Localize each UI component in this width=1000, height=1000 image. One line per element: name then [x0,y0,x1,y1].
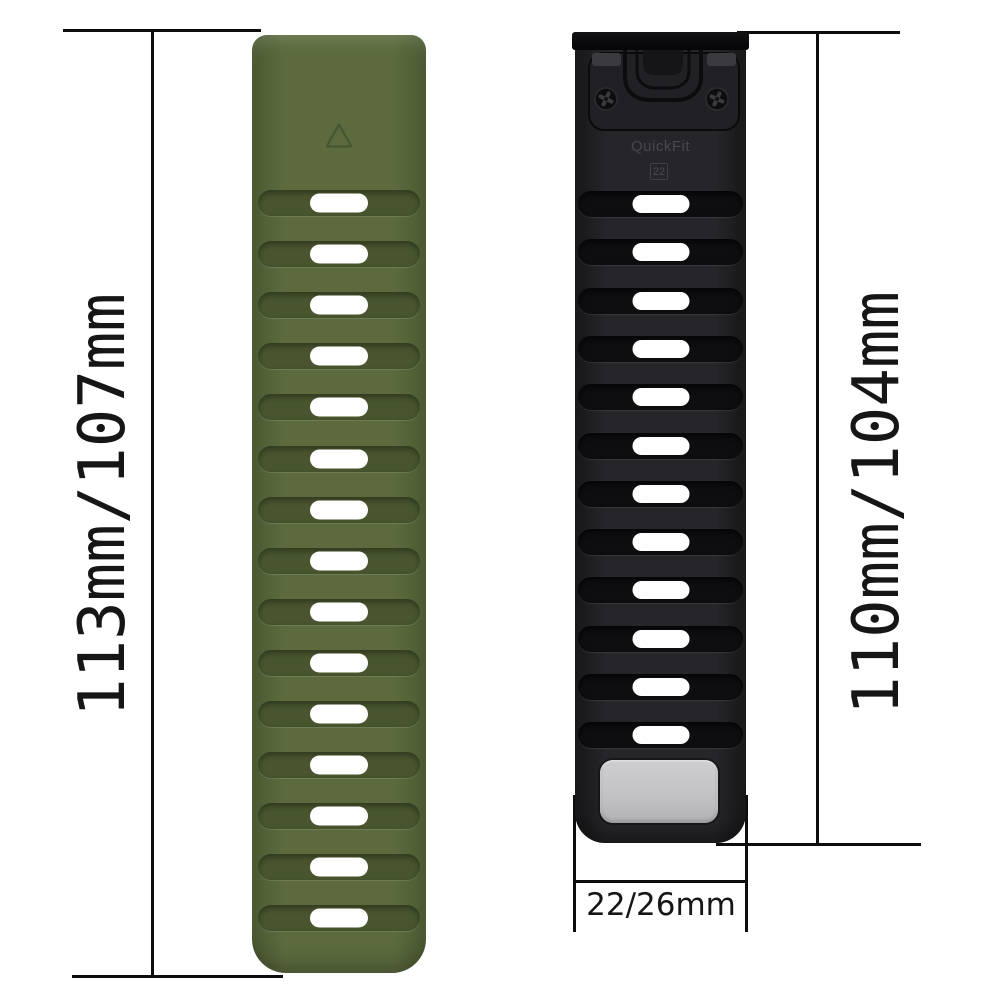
strap-hole [632,485,689,503]
right-length-label: 110mm/104mm [845,291,909,715]
left-measure-top-cap [63,29,261,32]
strap-rib [258,752,420,778]
spring-arm-right [707,53,736,66]
strap-rib [578,336,743,362]
strap-hole [310,347,368,366]
strap-rib [258,650,420,676]
strap-rib [578,239,743,265]
quickfit-connector [575,50,746,132]
strap-rib [258,905,420,931]
strap-hole [632,437,689,455]
strap-hole [632,533,689,551]
buckle-plate [600,760,718,823]
strap-rib [258,599,420,625]
strap-rib [578,577,743,603]
strap-rib [578,722,743,748]
strap-rib [258,190,420,216]
width-measure-line [573,880,748,883]
strap-rib [258,292,420,318]
strap-hole [632,678,689,696]
triangle-logo-icon [324,122,354,150]
strap-hole [310,194,368,213]
strap-hole [632,292,689,310]
left-measure-line [151,29,154,978]
product-dimension-diagram: 113mm/107mm 110mm/104mm 22/26mm [0,0,1000,1000]
strap-rib [258,497,420,523]
strap-rib [258,803,420,829]
connector-size-badge: 22 [650,163,668,180]
strap-rib [578,626,743,652]
strap-rib [258,548,420,574]
strap-rib [258,701,420,727]
quickfit-brand-label: QuickFit [575,138,746,155]
left-measure-bottom-cap [72,975,283,978]
strap-hole [310,500,368,519]
strap-rib [578,529,743,555]
strap-hole [310,449,368,468]
left-length-label: 113mm/107mm [71,293,135,717]
strap-hole [310,398,368,417]
width-label: 22/26mm [586,888,736,922]
strap-hole [310,858,368,877]
strap-hole [632,581,689,599]
right-measure-line [816,31,819,846]
strap-hole [632,630,689,648]
strap-hole [632,388,689,406]
strap-hole [632,726,689,744]
strap-rib [578,191,743,217]
strap-hole [310,245,368,264]
strap-rib [578,288,743,314]
strap-hole [310,602,368,621]
strap-rib [258,241,420,267]
strap-rib [258,854,420,880]
strap-hole [310,551,368,570]
spring-arm-left [592,53,621,66]
strap-rib [578,481,743,507]
strap-hole [310,296,368,315]
strap-hole [632,195,689,213]
strap-rib [578,674,743,700]
connector-size-text: 22 [653,166,665,178]
strap-rib [578,384,743,410]
strap-rib [258,343,420,369]
strap-rib [258,394,420,420]
green-strap [252,35,426,973]
strap-hole [310,807,368,826]
strap-rib [258,446,420,472]
strap-hole [632,340,689,358]
strap-hole [310,653,368,672]
strap-hole [632,243,689,261]
black-strap: QuickFit 22 [575,32,746,843]
strap-rib [578,433,743,459]
quickfit-connector-bar [572,32,749,50]
strap-hole [310,756,368,775]
latch-notch [643,50,683,75]
strap-hole [310,705,368,724]
strap-hole [310,909,368,928]
